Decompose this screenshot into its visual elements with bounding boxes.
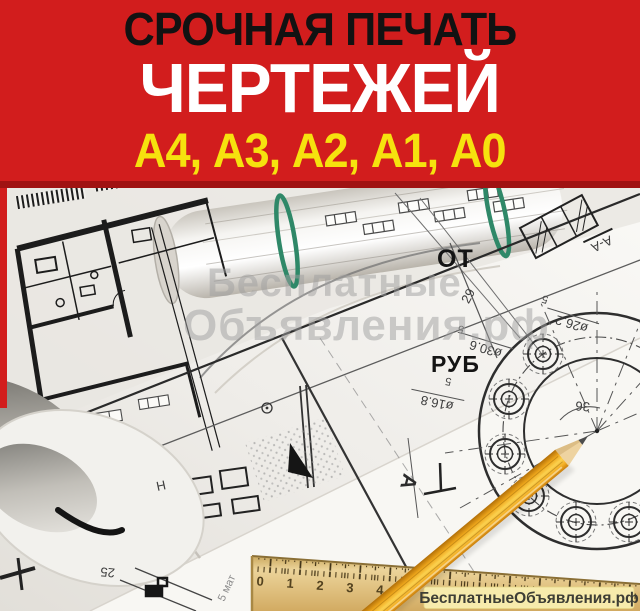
blueprint-photo: ø26.2 5 ø30.6 5 ø16.8 5 36 bbox=[0, 188, 640, 611]
headline-paper-formats: А4, А3, А2, А1, А0 bbox=[0, 124, 640, 179]
header-divider bbox=[0, 181, 640, 188]
site-badge: БесплатныеОбъявления.рф bbox=[419, 587, 638, 609]
blueprint-scene: ø26.2 5 ø30.6 5 ø16.8 5 36 bbox=[0, 188, 640, 611]
left-red-stripe bbox=[0, 188, 7, 408]
dimension-label: 25 bbox=[100, 564, 116, 580]
ruler-number: 3 bbox=[346, 580, 354, 595]
headline-blueprints: ЧЕРТЕЖЕЙ bbox=[0, 48, 640, 128]
ruler-number: 0 bbox=[256, 573, 264, 588]
price-currency-label: РУБ bbox=[431, 351, 480, 377]
ruler-number: 2 bbox=[316, 578, 324, 593]
watermark-line1: Бесплатные bbox=[207, 261, 462, 305]
site-badge-text: БесплатныеОбъявления.рф bbox=[419, 590, 638, 607]
header-banner: СРОЧНАЯ ПЕЧАТЬ ЧЕРТЕЖЕЙ А4, А3, А2, А1, … bbox=[0, 0, 640, 188]
ruler-number: 1 bbox=[286, 576, 294, 591]
price-from-label: ОТ bbox=[437, 245, 474, 273]
watermark-line2: Объявления.рф bbox=[183, 301, 550, 350]
dimension-label: 36 bbox=[575, 398, 591, 414]
ad-poster: СРОЧНАЯ ПЕЧАТЬ ЧЕРТЕЖЕЙ А4, А3, А2, А1, … bbox=[0, 0, 640, 611]
